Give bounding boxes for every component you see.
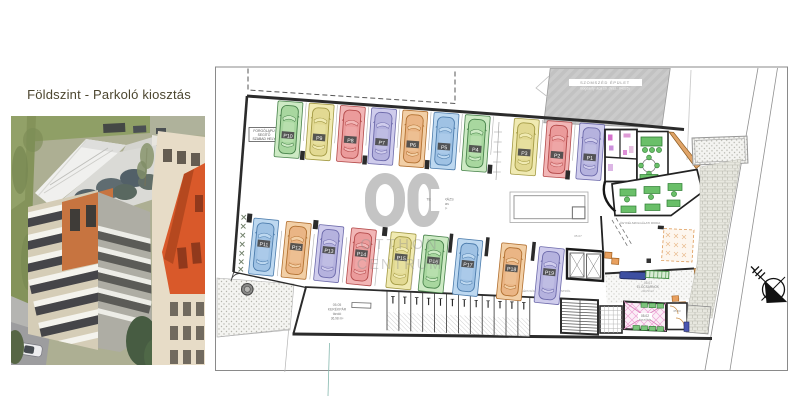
svg-text:P19: P19 — [545, 270, 555, 277]
svg-text:P6: P6 — [409, 143, 416, 149]
svg-text:P5: P5 — [441, 145, 448, 151]
svg-text:P13: P13 — [324, 248, 334, 255]
svg-text:OTTHON: OTTHON — [360, 237, 439, 253]
svg-text:05.07: 05.07 — [574, 234, 582, 238]
svg-text:SZOMSZÉD ÉPÜLET: SZOMSZÉD ÉPÜLET — [580, 80, 630, 85]
svg-text:P2: P2 — [554, 153, 561, 159]
svg-text:36,98 m²: 36,98 m² — [331, 317, 344, 321]
svg-text:lépcsőház: lépcsőház — [639, 318, 652, 322]
svg-text:P3: P3 — [521, 151, 528, 157]
svg-text:P7: P7 — [378, 140, 385, 146]
svg-text:CENTRUM: CENTRUM — [357, 257, 444, 273]
svg-text:P8: P8 — [347, 138, 354, 144]
svg-text:05.03: 05.03 — [674, 309, 681, 313]
svg-text:P18: P18 — [507, 266, 517, 273]
svg-text:tároló: tároló — [333, 312, 342, 316]
svg-text:P4: P4 — [472, 147, 479, 153]
svg-text:05.05: 05.05 — [333, 303, 342, 307]
svg-text:SZABAD HELY: SZABAD HELY — [252, 137, 276, 141]
svg-text:P1: P1 — [586, 156, 593, 162]
svg-text:P17: P17 — [463, 262, 473, 269]
svg-text:Bogdánfy utca 10. (hrsz.: 0432: Bogdánfy utca 10. (hrsz.: 04326) — [580, 87, 629, 91]
svg-text:30,73 m²: 30,73 m² — [642, 289, 654, 293]
svg-text:P12: P12 — [292, 245, 302, 252]
svg-text:KERÉKPÁR: KERÉKPÁR — [328, 307, 347, 312]
svg-text:P10: P10 — [283, 133, 293, 140]
svg-text:ÜGYFÉLSZOLGÁLATI IRODA: ÜGYFÉLSZOLGÁLATI IRODA — [620, 220, 661, 225]
svg-text:P11: P11 — [259, 242, 269, 249]
svg-text:P9: P9 — [316, 136, 323, 142]
